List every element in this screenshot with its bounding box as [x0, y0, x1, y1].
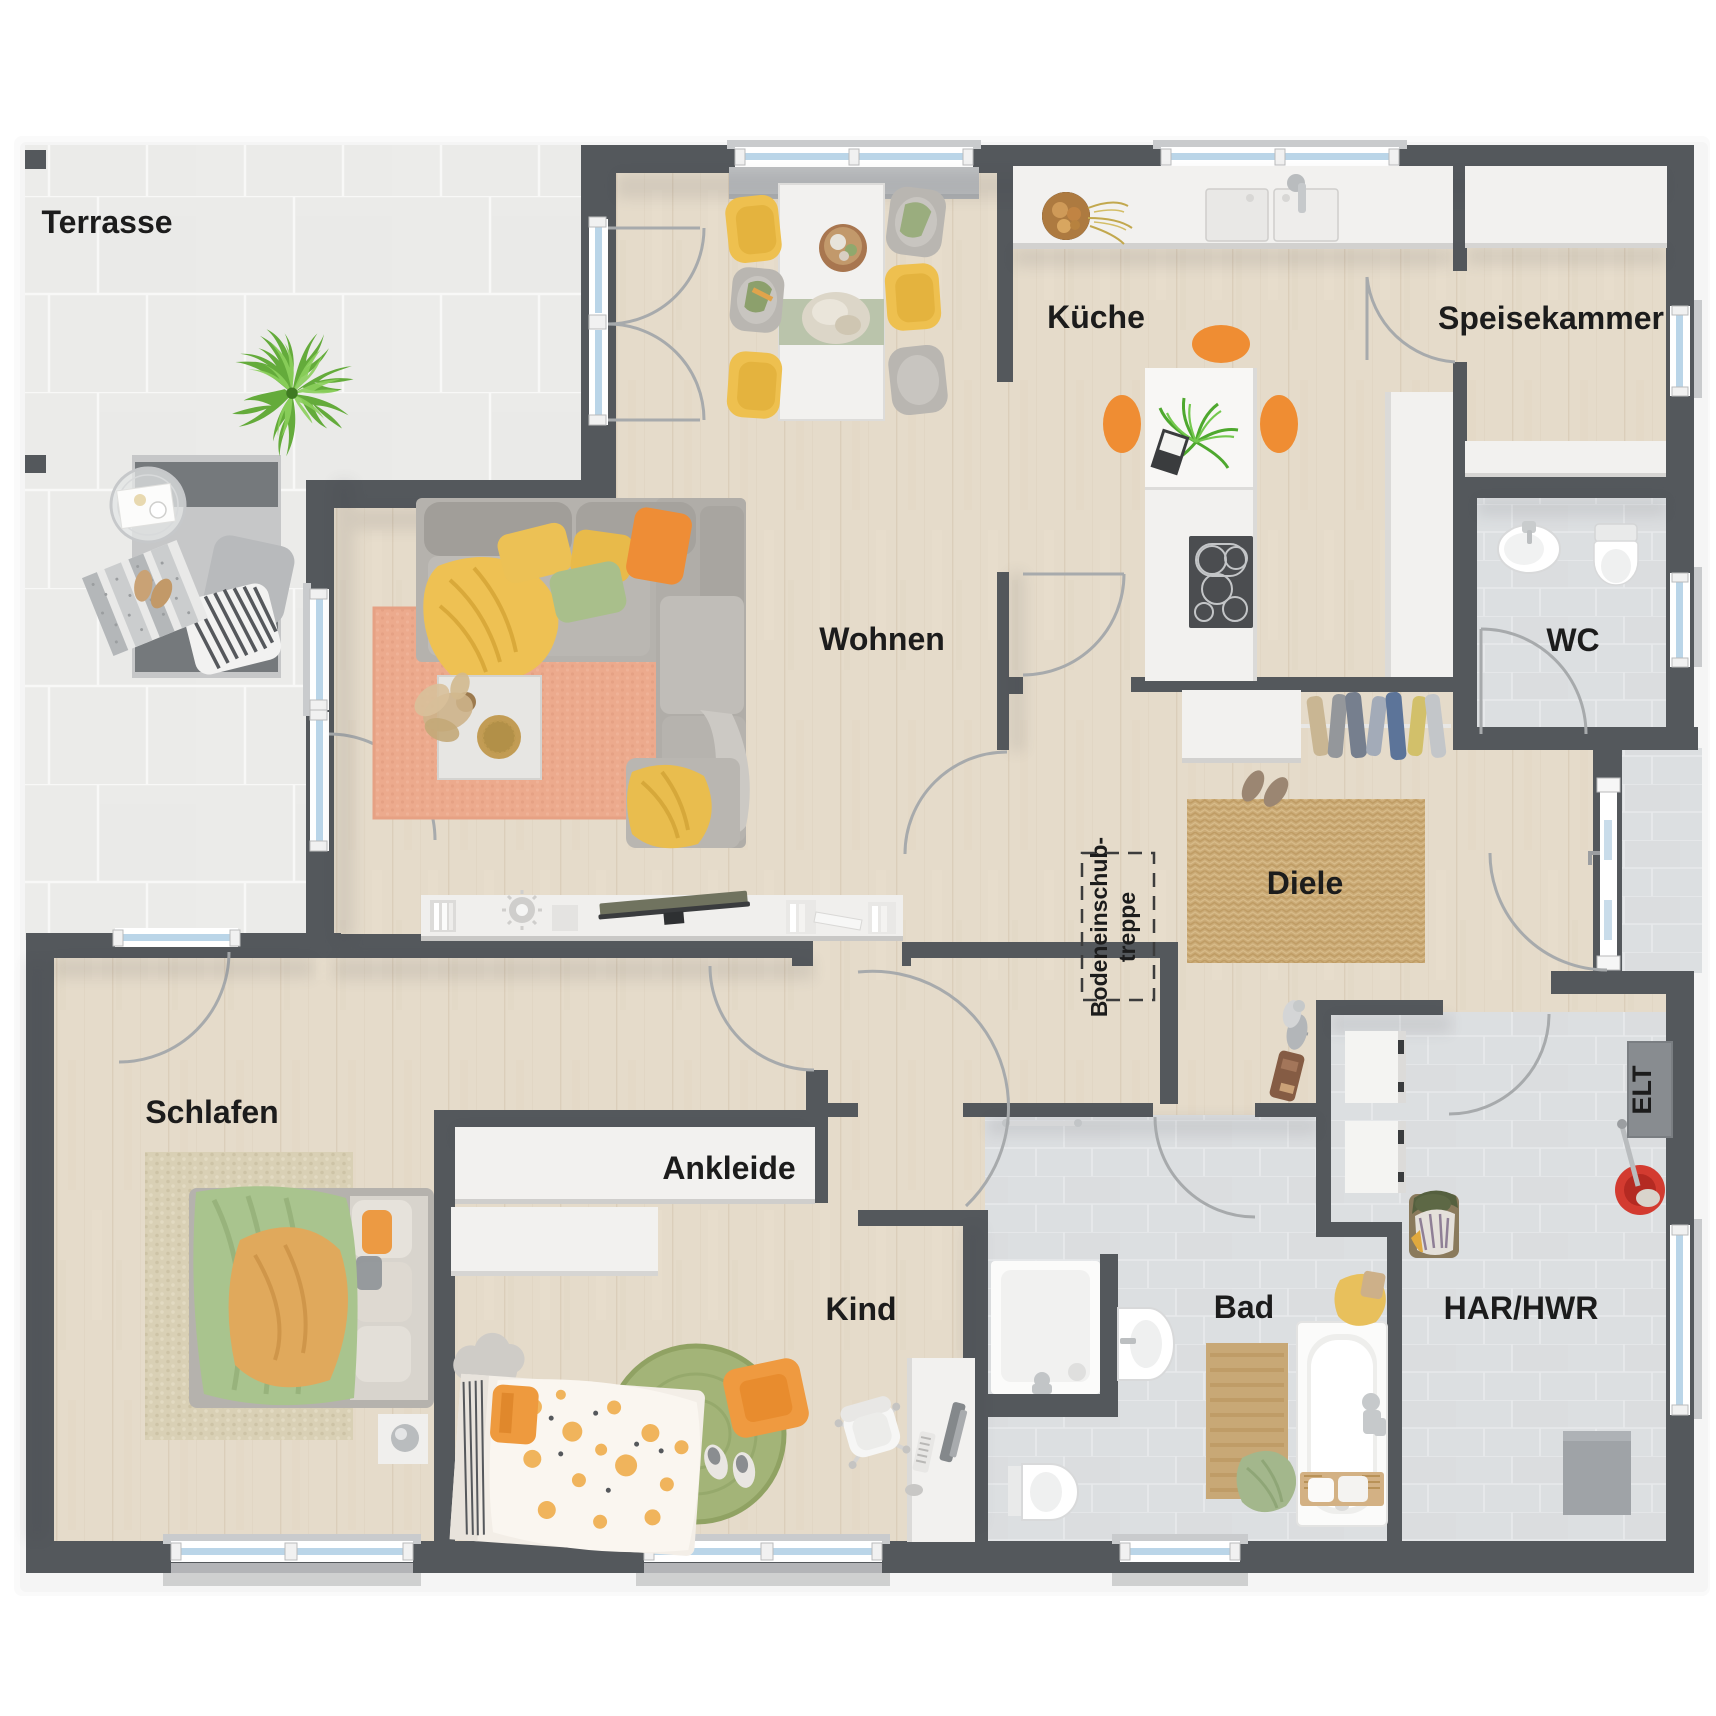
svg-text:HAR/HWR: HAR/HWR [1444, 1290, 1599, 1326]
svg-text:ELT: ELT [1627, 1065, 1657, 1114]
svg-text:Kind: Kind [825, 1291, 896, 1327]
svg-text:Terrasse: Terrasse [41, 204, 172, 240]
svg-text:Wohnen: Wohnen [819, 621, 945, 657]
svg-text:Ankleide: Ankleide [662, 1150, 795, 1186]
svg-text:Speisekammer: Speisekammer [1438, 300, 1664, 336]
svg-text:Diele: Diele [1267, 865, 1343, 901]
svg-text:Bad: Bad [1214, 1289, 1274, 1325]
svg-text:Küche: Küche [1047, 299, 1145, 335]
svg-text:Bodeneinschub-: Bodeneinschub- [1086, 837, 1112, 1017]
svg-text:treppe: treppe [1114, 892, 1140, 962]
svg-text:Schlafen: Schlafen [145, 1094, 278, 1130]
svg-text:WC: WC [1546, 622, 1599, 658]
